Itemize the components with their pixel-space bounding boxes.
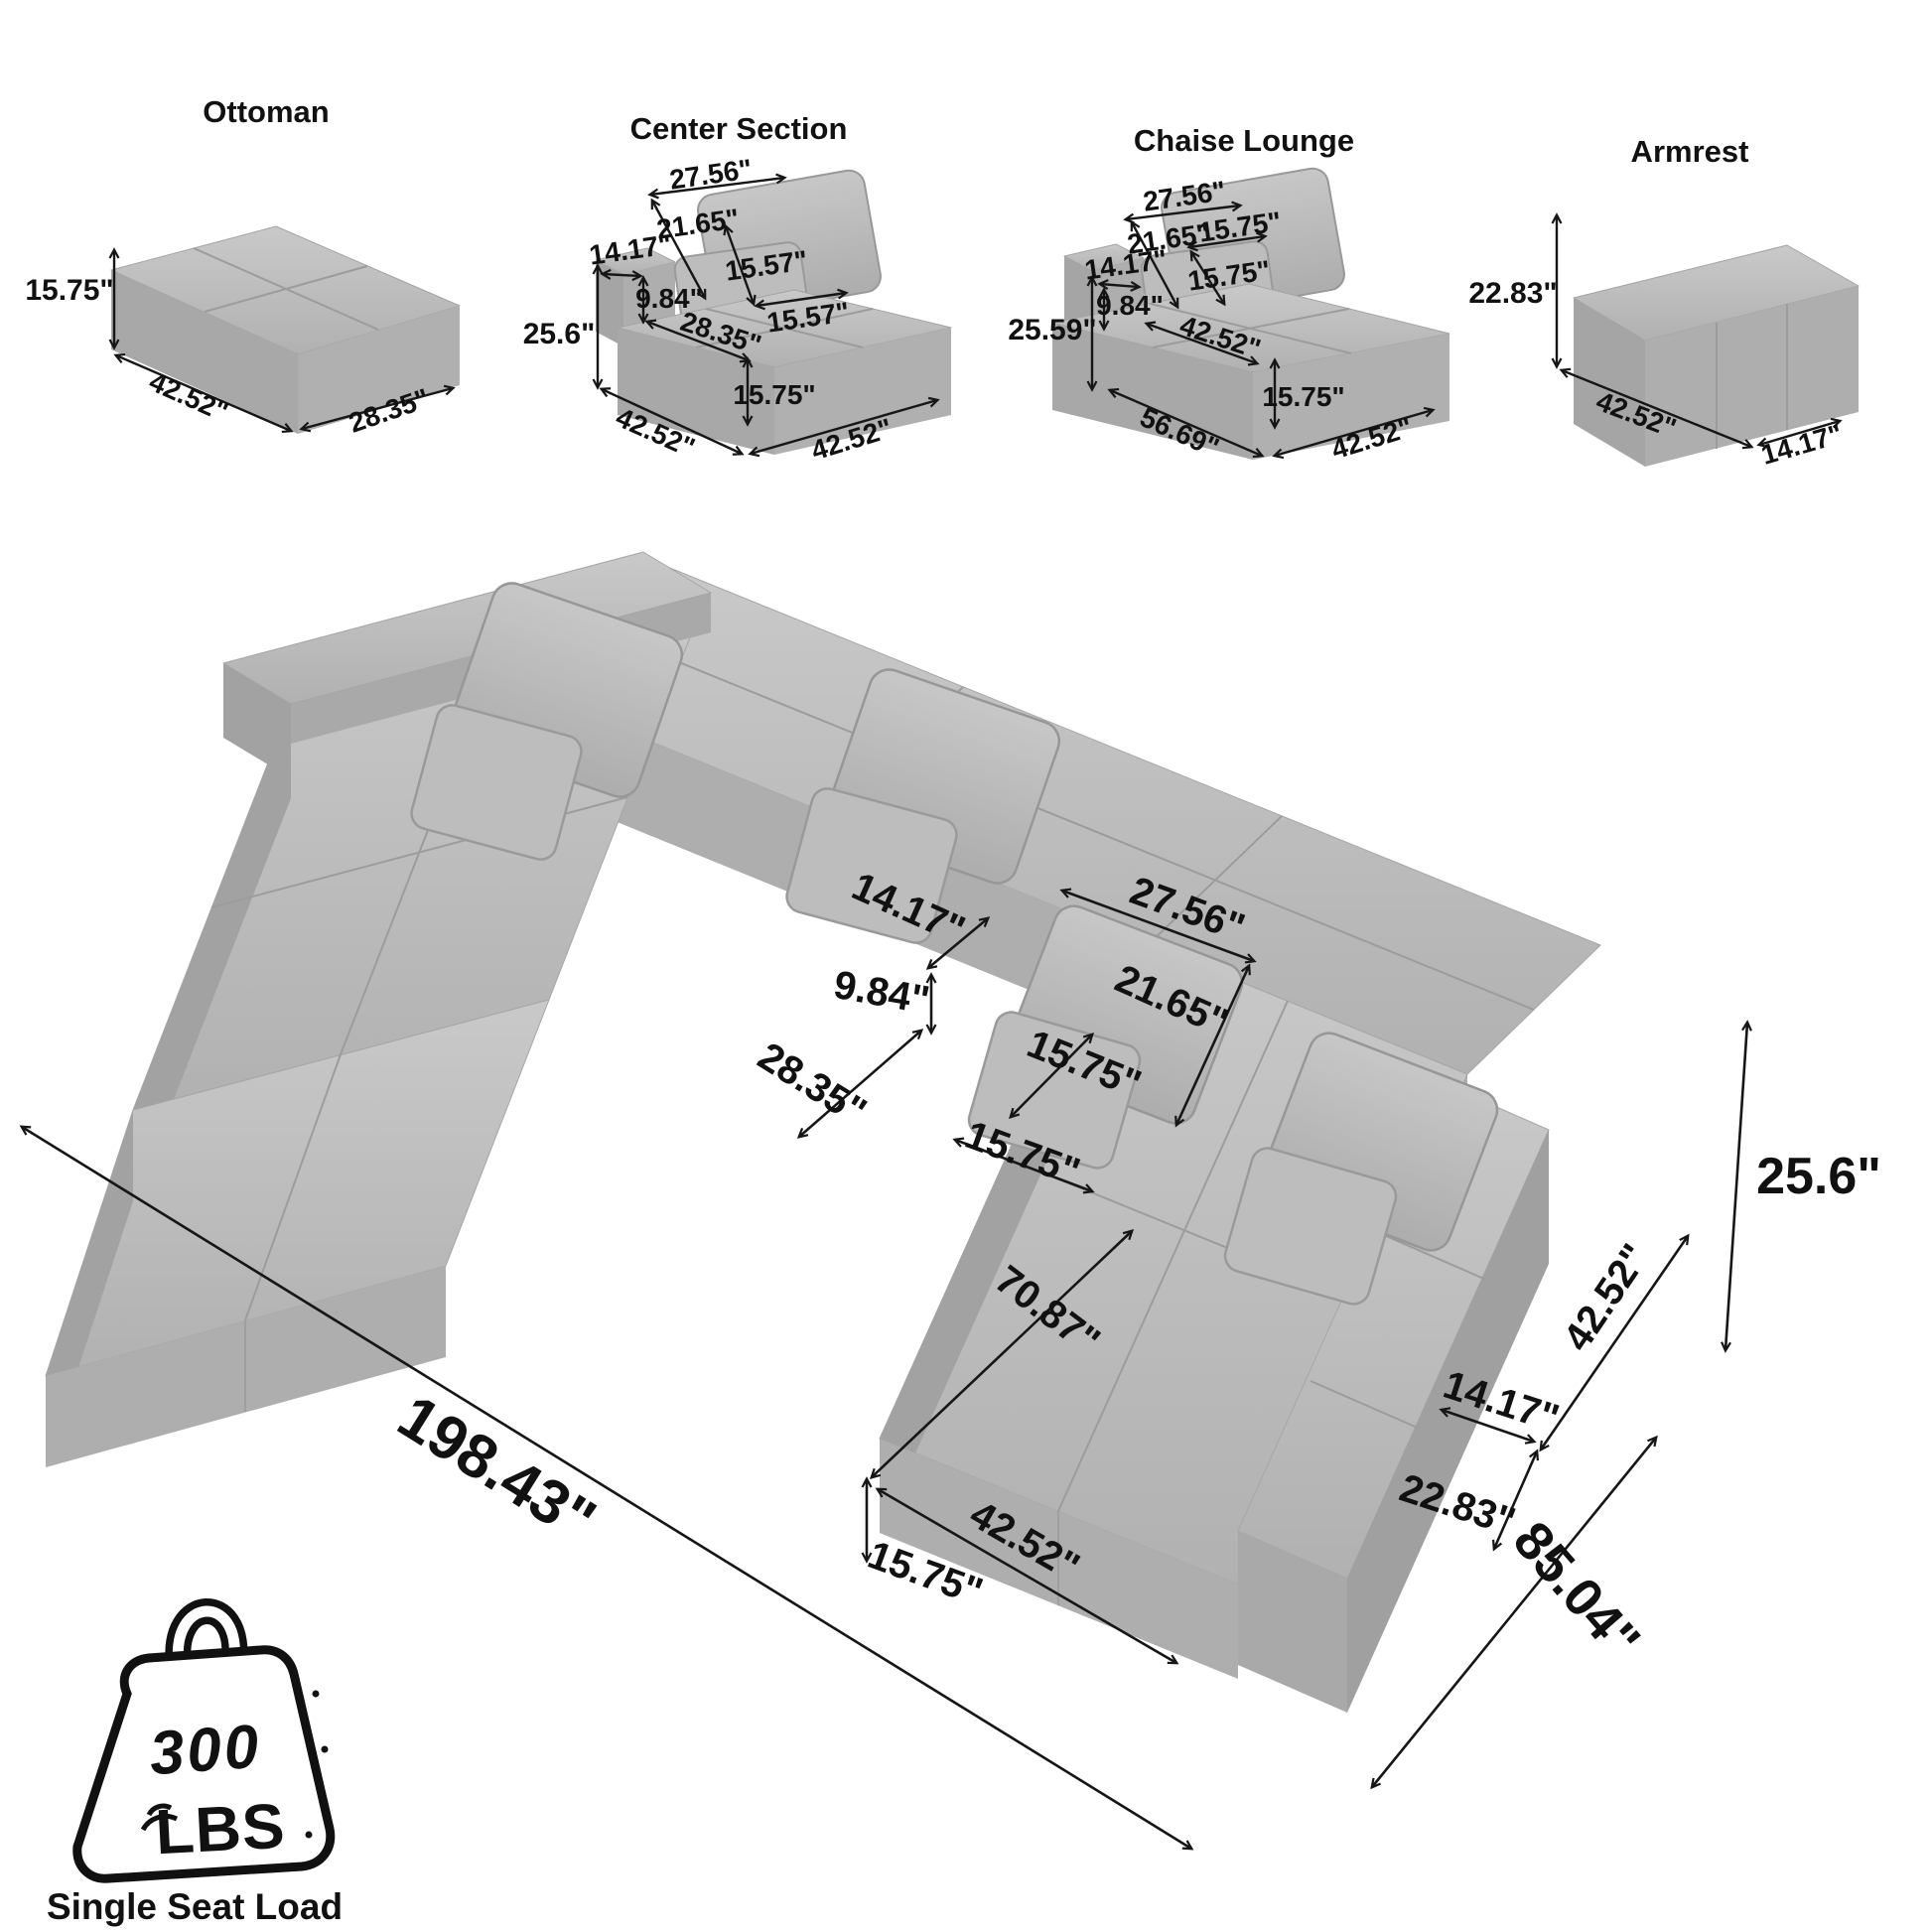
module-title-chaise-lounge: Chaise Lounge [1134, 123, 1354, 159]
dim-chaise-seat-height: 15.75" [1262, 383, 1344, 411]
badge-load-value: 300 [147, 1712, 263, 1790]
dim-chaise-back-height: 9.84" [1096, 292, 1164, 320]
dim-ottoman-height: 15.75" [25, 276, 113, 306]
module-title-ottoman: Ottoman [203, 94, 329, 130]
assembled-sofa-illustration [46, 552, 1600, 1713]
dim-center-seat-height: 15.75" [733, 381, 815, 409]
dim-main-overall-height: 25.6" [1756, 1151, 1881, 1202]
diagram-graphics [0, 0, 1932, 1932]
module-title-center-section: Center Section [630, 111, 848, 147]
product-dimension-diagram: Ottoman Center Section Chaise Lounge Arm… [0, 0, 1932, 1932]
badge-caption: Single Seat Load [47, 1886, 343, 1928]
dim-chaise-overall-height: 25.59" [1008, 316, 1096, 345]
badge-load-unit: LBS [154, 1789, 288, 1869]
dim-armrest-height: 22.83" [1468, 279, 1557, 309]
module-title-armrest: Armrest [1631, 134, 1749, 170]
dim-center-overall-height: 25.6" [523, 320, 596, 349]
